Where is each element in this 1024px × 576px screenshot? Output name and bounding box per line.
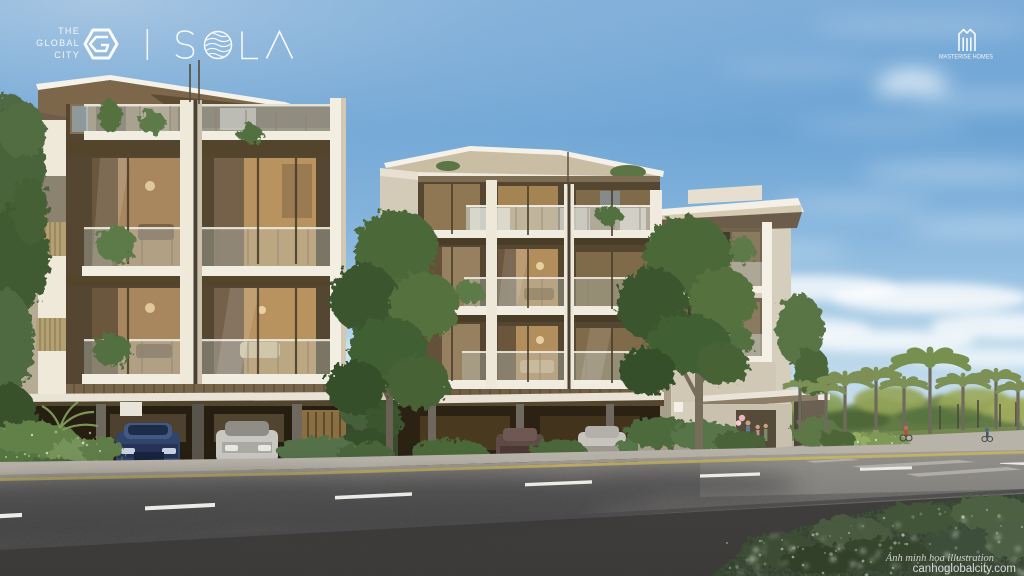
svg-text:canhoglobalcity.com: canhoglobalcity.com xyxy=(913,563,1016,575)
svg-text:GLOBAL: GLOBAL xyxy=(36,38,80,48)
svg-text:CITY: CITY xyxy=(54,50,80,60)
svg-text:MASTERISE HOMES: MASTERISE HOMES xyxy=(939,55,993,61)
svg-text:THE: THE xyxy=(58,26,80,36)
